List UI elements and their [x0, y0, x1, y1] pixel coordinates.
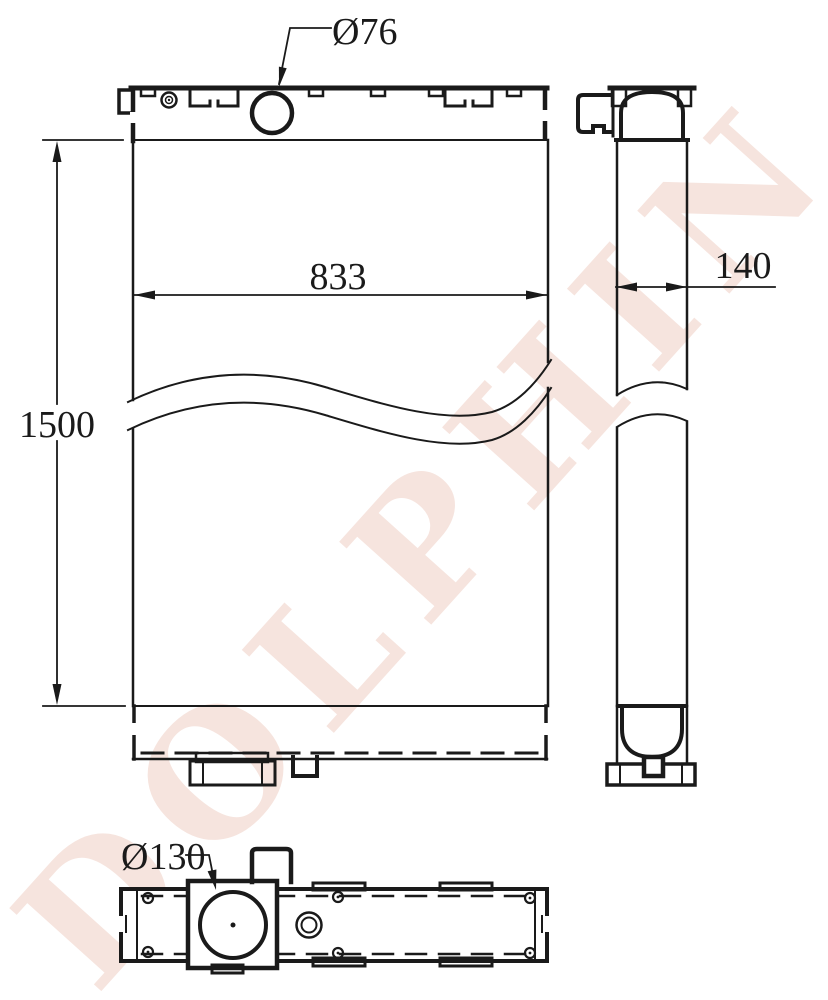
inlet-pipe [578, 95, 612, 132]
filler-diameter-label: Ø76 [332, 11, 397, 53]
tank-left-edge-notch [130, 112, 136, 123]
bottom-right-edge-notch [543, 723, 549, 735]
arrow-left [134, 291, 155, 300]
arrow-up [53, 141, 62, 162]
bottom-left-edge-notch [131, 723, 137, 735]
arrow-down [53, 684, 62, 705]
core-depth-label: 140 [715, 245, 772, 287]
tank-right-edge-notch [542, 110, 548, 121]
callout-filler-diameter: Ø76 [279, 11, 398, 87]
outlet-center-dot [231, 923, 236, 928]
overall-height-label: 1500 [19, 404, 95, 446]
drain-tab [644, 757, 663, 776]
leader-line [279, 28, 331, 84]
front-top-tank [119, 88, 548, 141]
left-edge-notch [117, 916, 125, 932]
right-edge-notch [543, 916, 551, 932]
core-width-label: 833 [310, 256, 367, 298]
bracket-cutout-right [445, 90, 492, 106]
overflow-plug-ring [162, 93, 177, 108]
bracket-cutout-left [190, 90, 238, 106]
radiator-drawing-canvas: DOLPHIN [0, 0, 828, 1000]
technical-drawing-page: DOLPHIN [0, 0, 828, 1000]
leader-arrow [279, 67, 287, 87]
outlet-diameter-label: Ø130 [121, 836, 205, 878]
top-edge-notches [141, 90, 521, 96]
dim-core-width: 833 [134, 256, 547, 300]
filler-neck-circle [252, 93, 292, 133]
side-bottom-dome [622, 707, 682, 757]
dim-overall-height: 1500 [19, 140, 125, 706]
side-bottom-tank [607, 706, 695, 785]
